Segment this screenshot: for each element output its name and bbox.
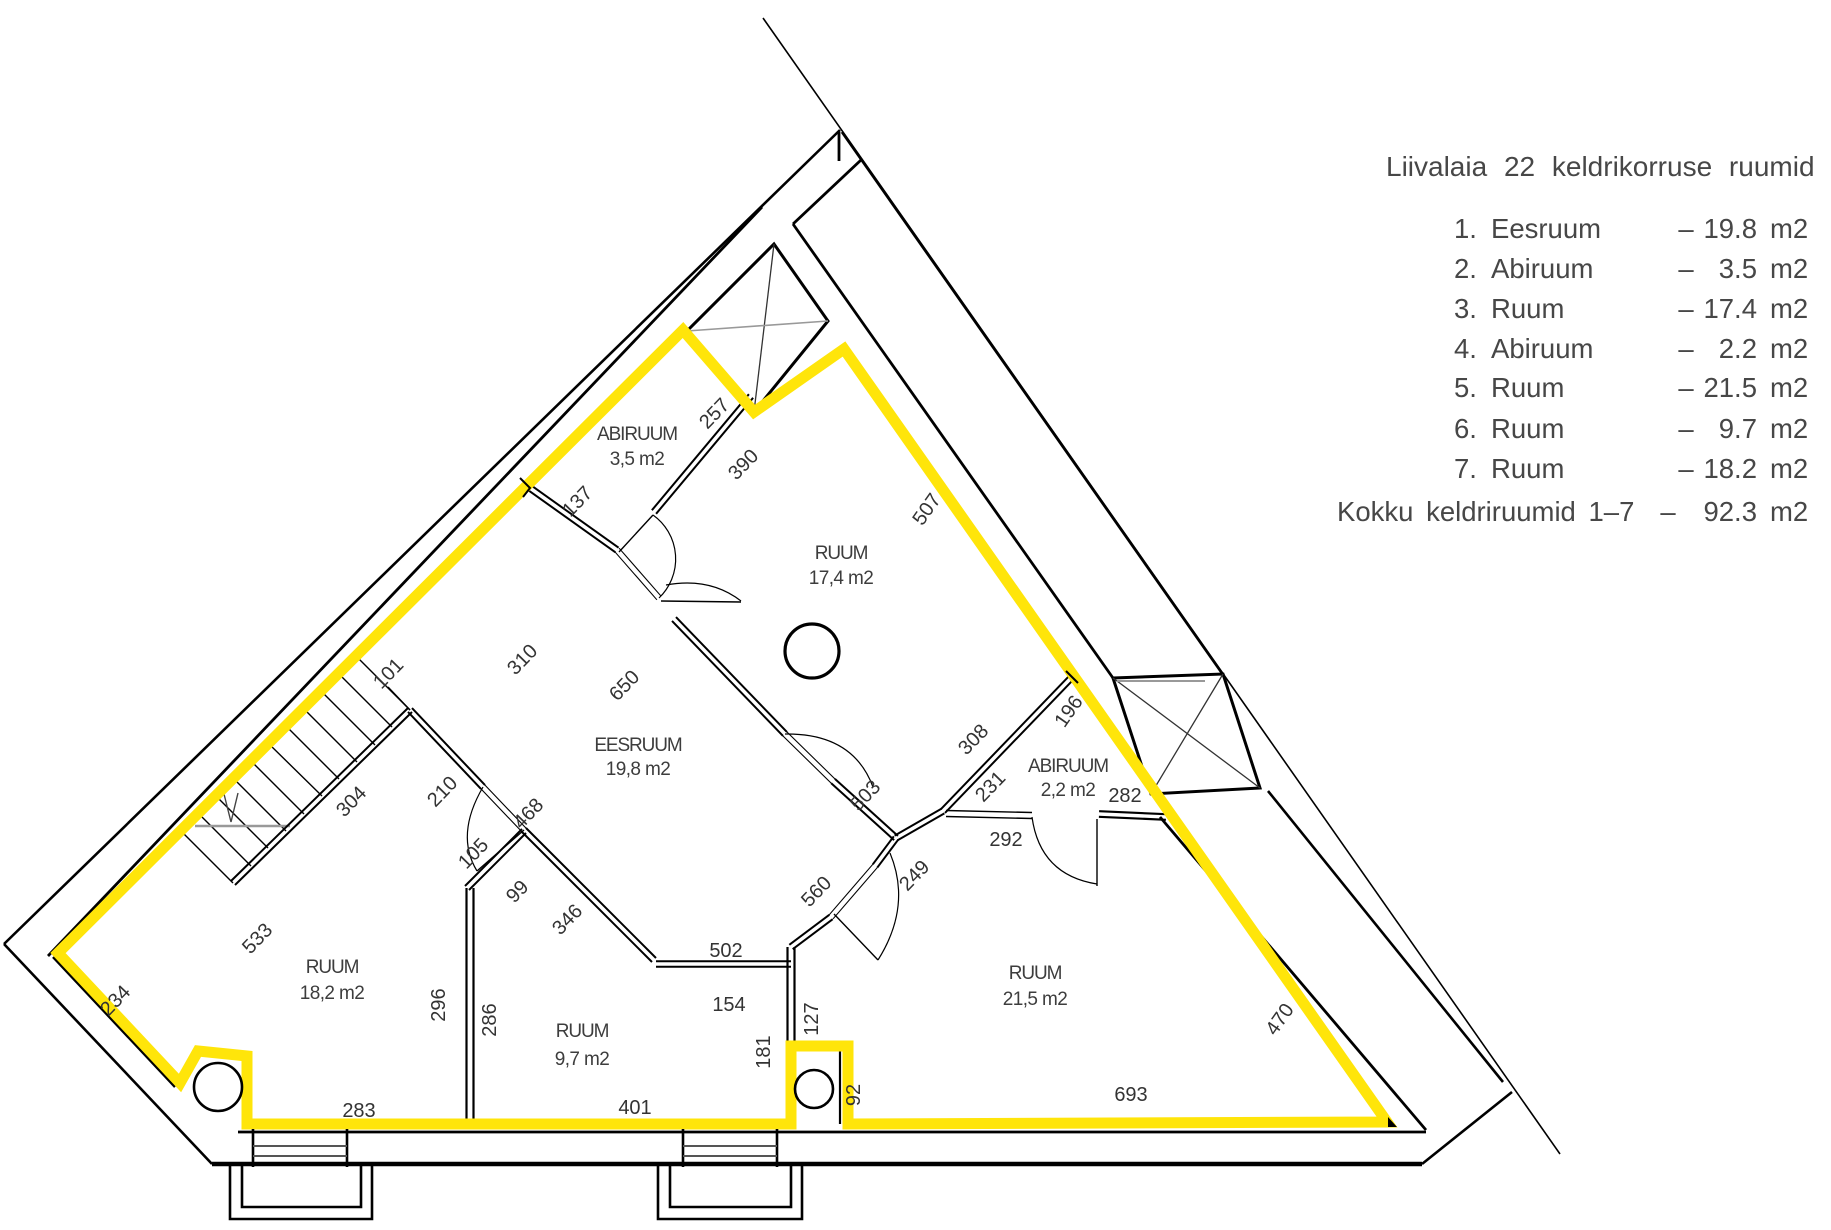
svg-text:2.: 2. xyxy=(1454,253,1477,284)
svg-text:Abiruum: Abiruum xyxy=(1491,333,1593,364)
svg-text:Abiruum: Abiruum xyxy=(1491,253,1593,284)
svg-text:92: 92 xyxy=(843,1084,865,1106)
svg-text:–: – xyxy=(1660,496,1676,527)
svg-text:m2: m2 xyxy=(1770,213,1808,244)
svg-text:21.5: 21.5 xyxy=(1703,372,1757,403)
svg-text:18.2: 18.2 xyxy=(1703,453,1757,484)
svg-text:401: 401 xyxy=(618,1097,651,1119)
svg-text:693: 693 xyxy=(1114,1084,1147,1106)
svg-text:9.7: 9.7 xyxy=(1719,413,1757,444)
svg-text:292: 292 xyxy=(989,829,1022,851)
svg-text:286: 286 xyxy=(479,1003,501,1036)
svg-text:m2: m2 xyxy=(1770,413,1808,444)
svg-text:296: 296 xyxy=(428,988,450,1021)
svg-text:181: 181 xyxy=(753,1035,775,1068)
svg-text:Ruum: Ruum xyxy=(1491,413,1564,444)
svg-text:154: 154 xyxy=(712,994,745,1016)
svg-text:m2: m2 xyxy=(1770,496,1808,527)
svg-text:EESRUUM: EESRUUM xyxy=(594,735,682,756)
svg-text:RUUM: RUUM xyxy=(306,957,359,978)
svg-text:92.3: 92.3 xyxy=(1703,496,1757,527)
svg-text:Liivalaia 22 keldrikorruse ruu: Liivalaia 22 keldrikorruse ruumid xyxy=(1386,151,1815,182)
svg-text:7.: 7. xyxy=(1454,453,1477,484)
svg-text:1.: 1. xyxy=(1454,213,1477,244)
svg-text:18,2 m2: 18,2 m2 xyxy=(300,983,364,1004)
svg-text:–: – xyxy=(1678,453,1694,484)
svg-text:ABIRUUM: ABIRUUM xyxy=(1028,756,1108,777)
svg-text:–: – xyxy=(1678,293,1694,324)
svg-text:17.4: 17.4 xyxy=(1703,293,1757,324)
svg-text:m2: m2 xyxy=(1770,293,1808,324)
svg-text:9,7 m2: 9,7 m2 xyxy=(555,1049,610,1070)
svg-text:5.: 5. xyxy=(1454,372,1477,403)
svg-text:127: 127 xyxy=(801,1002,823,1035)
svg-text:2,2 m2: 2,2 m2 xyxy=(1041,780,1096,801)
svg-text:m2: m2 xyxy=(1770,333,1808,364)
svg-text:Eesruum: Eesruum xyxy=(1491,213,1601,244)
svg-text:RUUM: RUUM xyxy=(1009,963,1062,984)
svg-text:17,4 m2: 17,4 m2 xyxy=(809,568,873,589)
svg-text:m2: m2 xyxy=(1770,453,1808,484)
svg-text:Ruum: Ruum xyxy=(1491,453,1564,484)
svg-text:19,8 m2: 19,8 m2 xyxy=(606,759,670,780)
svg-text:–: – xyxy=(1678,372,1694,403)
svg-text:283: 283 xyxy=(342,1100,375,1122)
svg-text:m2: m2 xyxy=(1770,253,1808,284)
svg-text:19.8: 19.8 xyxy=(1703,213,1757,244)
svg-text:282: 282 xyxy=(1108,785,1141,807)
svg-text:6.: 6. xyxy=(1454,413,1477,444)
svg-text:3.: 3. xyxy=(1454,293,1477,324)
svg-text:3.5: 3.5 xyxy=(1719,253,1757,284)
svg-text:502: 502 xyxy=(709,940,742,962)
svg-text:m2: m2 xyxy=(1770,372,1808,403)
svg-text:–: – xyxy=(1678,333,1694,364)
svg-text:–: – xyxy=(1678,253,1694,284)
svg-text:Kokku keldriruumid 1–7: Kokku keldriruumid 1–7 xyxy=(1337,496,1634,527)
svg-text:Ruum: Ruum xyxy=(1491,293,1564,324)
svg-text:–: – xyxy=(1678,213,1694,244)
svg-text:ABIRUUM: ABIRUUM xyxy=(597,424,677,445)
svg-text:2.2: 2.2 xyxy=(1719,333,1757,364)
svg-text:21,5 m2: 21,5 m2 xyxy=(1003,989,1067,1010)
svg-text:3,5 m2: 3,5 m2 xyxy=(610,449,665,470)
svg-text:RUUM: RUUM xyxy=(815,543,868,564)
svg-text:–: – xyxy=(1678,413,1694,444)
svg-text:Ruum: Ruum xyxy=(1491,372,1564,403)
svg-text:RUUM: RUUM xyxy=(556,1021,609,1042)
svg-text:4.: 4. xyxy=(1454,333,1477,364)
